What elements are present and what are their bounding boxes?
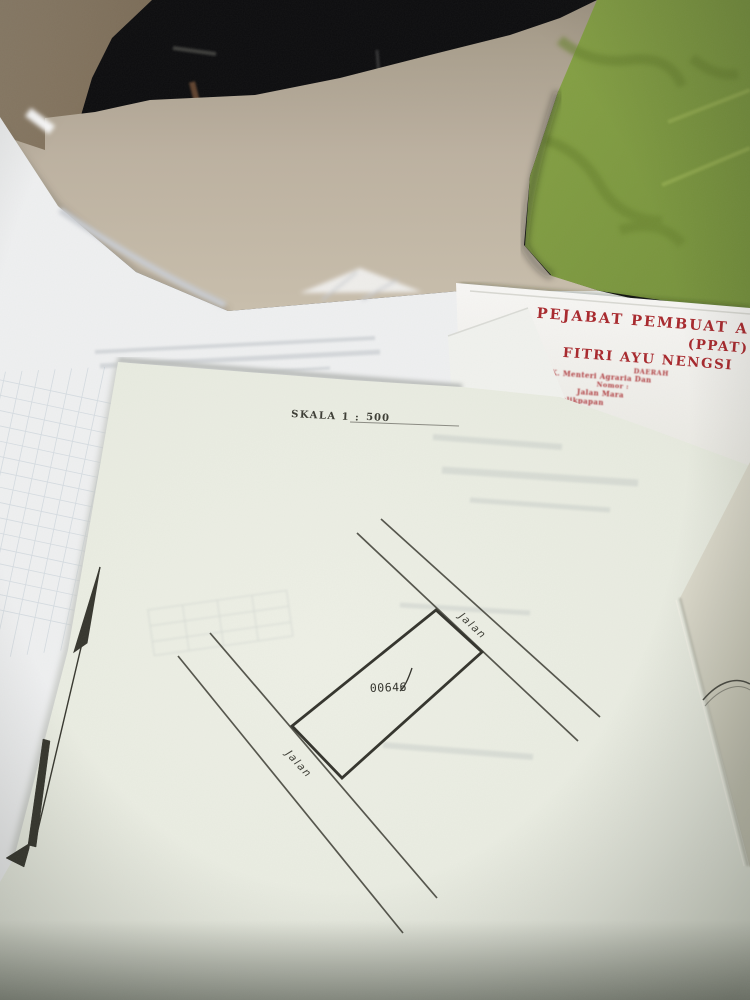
photo-grain [0,0,750,1000]
photo-of-land-survey-documents: PEJABAT PEMBUAT A (PPAT) FITRI AYU NENGS… [0,0,750,1000]
